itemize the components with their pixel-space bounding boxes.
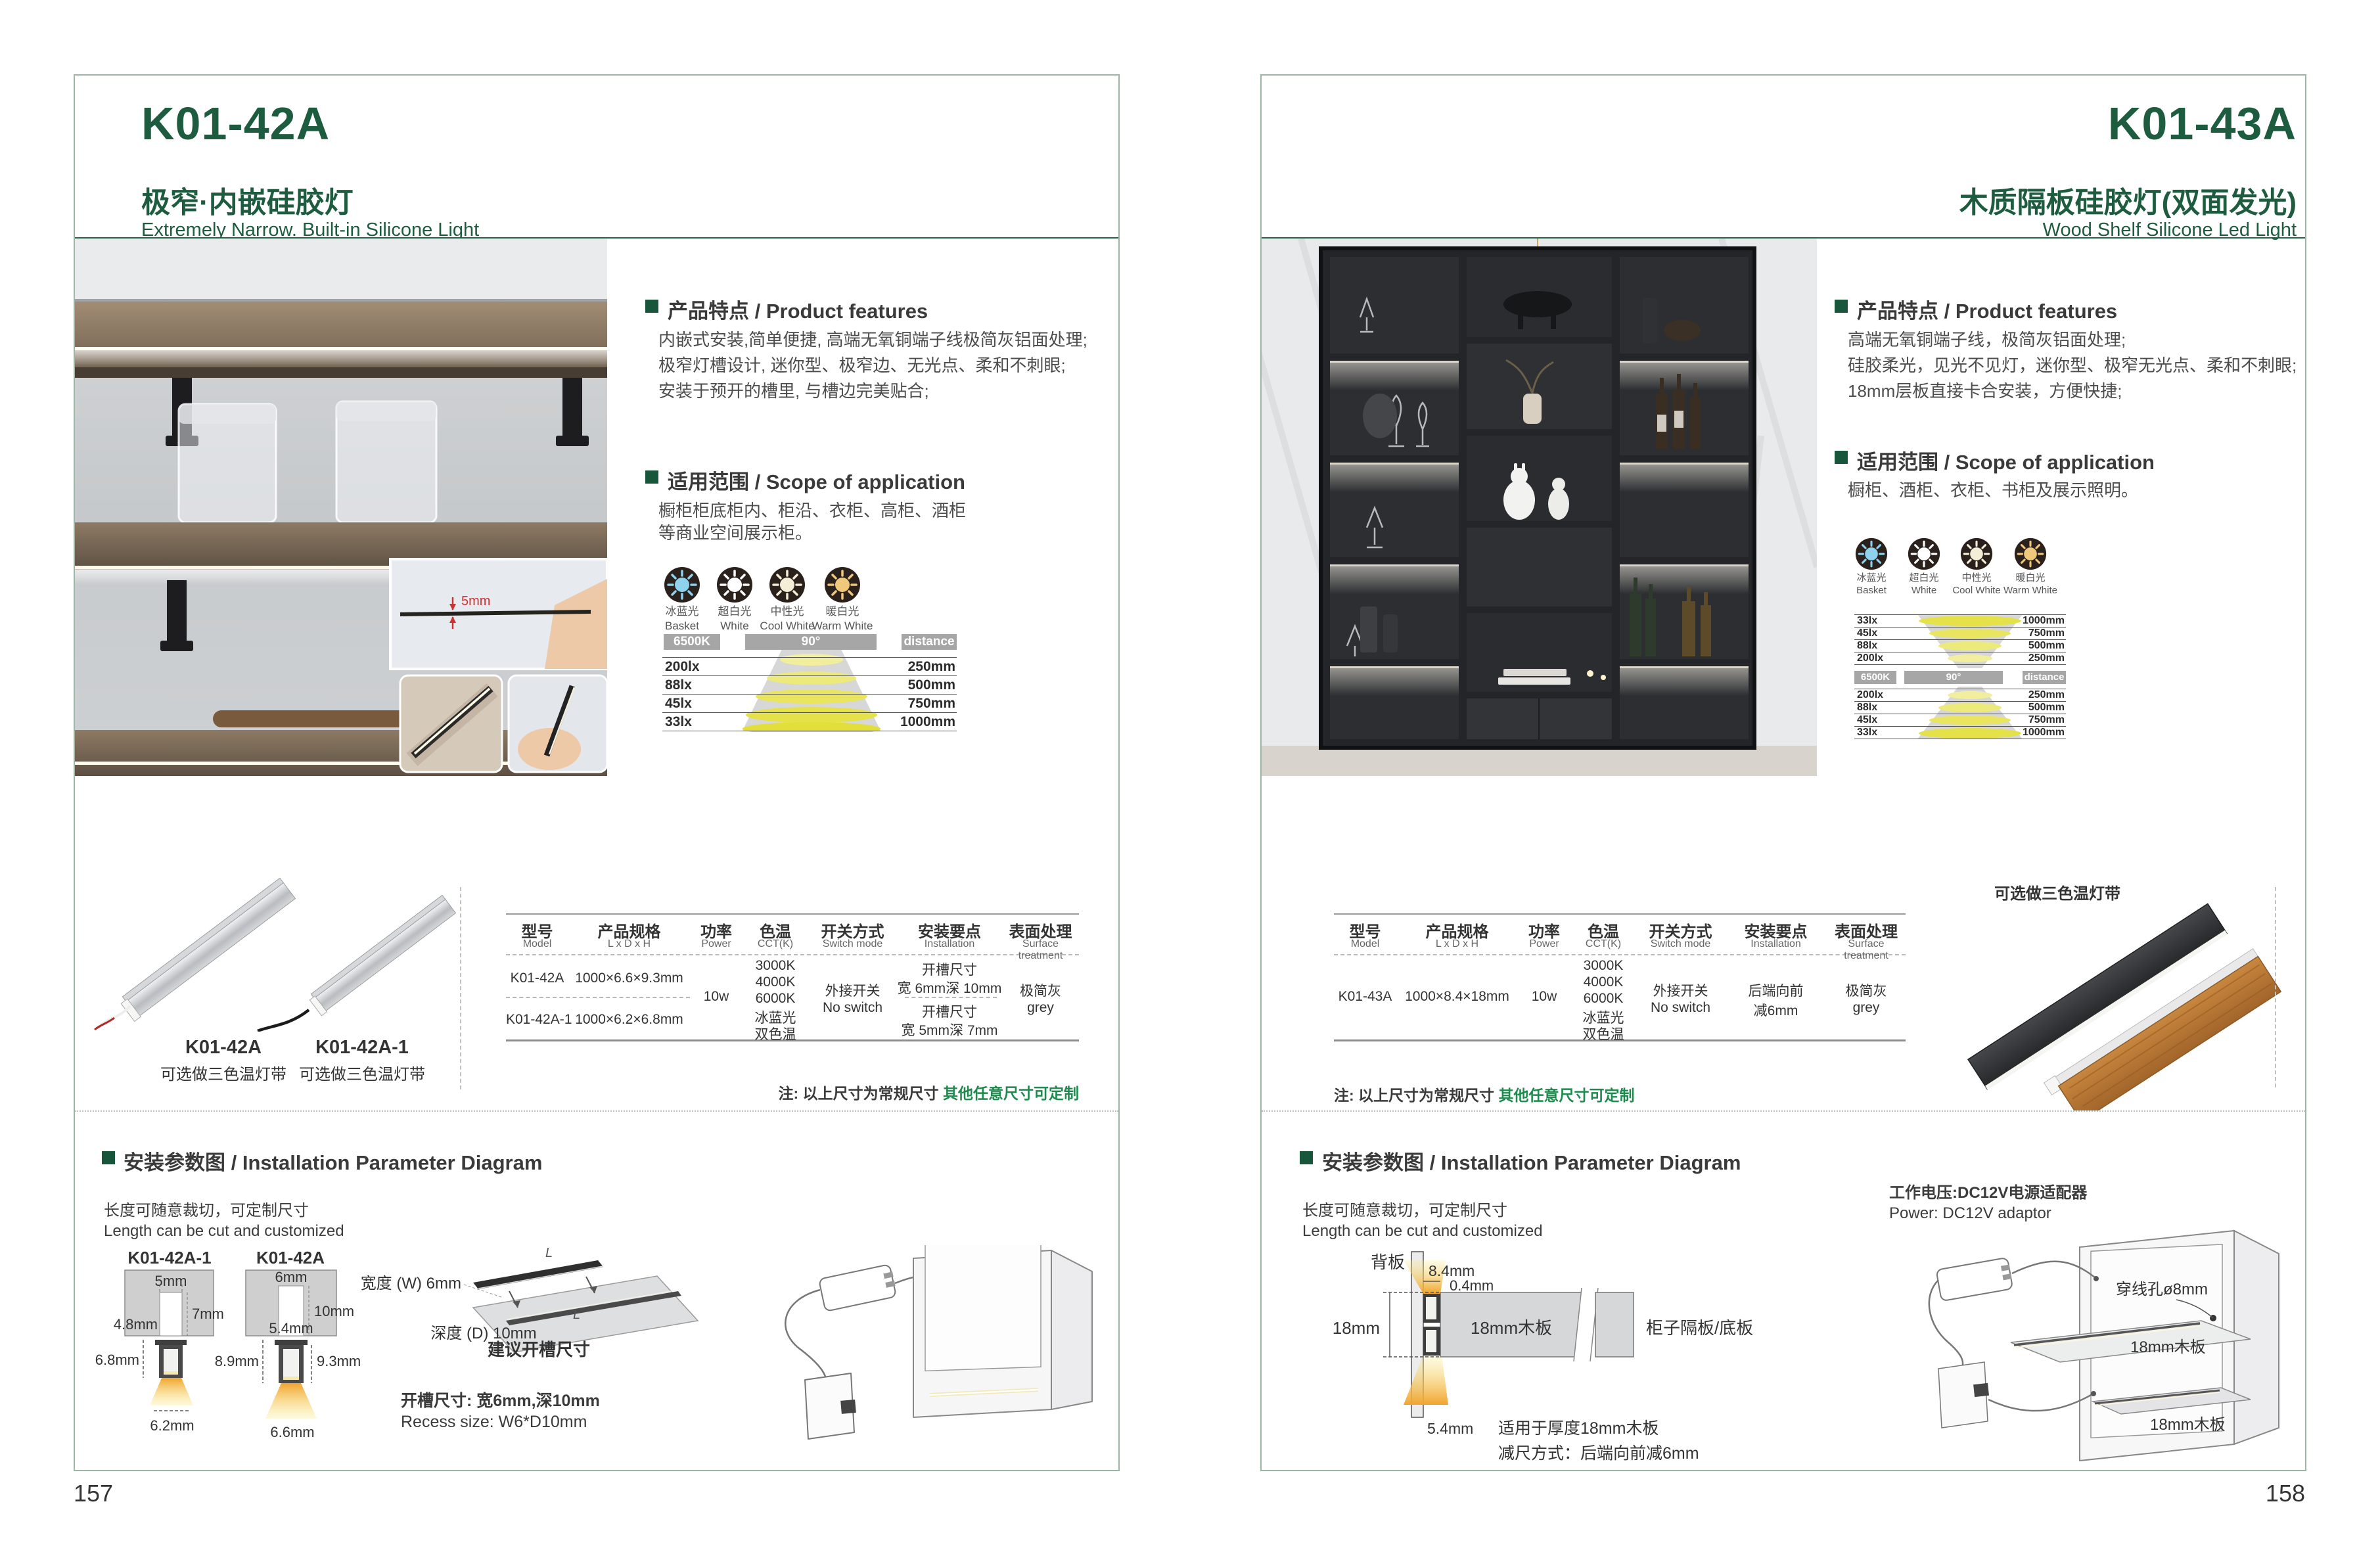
left-product-photo: 5mm: [75, 239, 607, 776]
svg-text:18mm木板: 18mm木板: [2130, 1338, 2206, 1356]
svg-text:8.9mm: 8.9mm: [215, 1353, 259, 1369]
feature-line: 内嵌式安装,简单便捷, 高端无氧铜端子线极简灰铝面处理;: [658, 327, 1087, 351]
distance-value: 1000mm: [1992, 615, 2065, 627]
svg-text:18mm木板: 18mm木板: [2150, 1416, 2226, 1434]
svg-text:减尺方式：后端向前减6mm: 减尺方式：后端向前减6mm: [1498, 1444, 1699, 1463]
svg-text:穿线孔ø8mm: 穿线孔ø8mm: [2116, 1281, 2208, 1298]
ice-blue-light-icon: [1855, 537, 1888, 570]
distance-value: 250mm: [1992, 689, 2065, 701]
adapter-cabinet-diagram: [785, 1245, 1092, 1439]
distance-bar: distance: [2023, 671, 2066, 684]
bullet-icon: [1300, 1151, 1313, 1164]
page-number: 158: [2239, 1480, 2305, 1507]
recess-size-cn: 开槽尺寸: 宽6mm,深10mm: [401, 1388, 600, 1411]
feature-line: 安装于预开的槽里, 与槽边完美贴合;: [658, 378, 929, 402]
cut-note-cn: 长度可随意裁切，可定制尺寸: [1302, 1197, 1507, 1220]
light-color-label: 暖白光Warm White: [803, 605, 882, 633]
svg-text:L: L: [573, 1308, 580, 1322]
bullet-icon: [645, 470, 658, 484]
distance-value: 1000mm: [858, 714, 955, 730]
spec-model: K01-42A: [506, 970, 568, 986]
diagram-K01-42A: K01-42A 6mm 10mm 5.4mm 8.9mm 9.3mm 6.6mm: [215, 1248, 361, 1440]
light-cone: [265, 1383, 317, 1419]
feature-line: 极窄灯槽设计, 迷你型、极窄边、无光点、柔和不刺眼;: [658, 352, 1066, 377]
profile-K01-42A-image: [118, 878, 296, 1021]
inset-hand-profile-photo: [509, 675, 607, 772]
right-scope-heading: 适用范围 / Scope of application: [1857, 445, 2155, 475]
lux-value: 45lx: [665, 696, 692, 712]
svg-text:6.2mm: 6.2mm: [150, 1417, 194, 1434]
svg-text:7mm: 7mm: [192, 1306, 224, 1322]
left-title-cn: 极窄·内嵌硅胶灯: [141, 179, 354, 221]
cool-white-light-icon: [1960, 537, 1993, 570]
inset-dim-label: 5mm: [461, 594, 490, 608]
cabinet-wiring-diagram: 穿线孔ø8mm 18mm木板 18mm木板: [1919, 1221, 2306, 1465]
spec-size: 1000×6.2×6.8mm: [568, 1012, 690, 1028]
custom-size-note: 注: 以上尺寸为常规尺寸 其他任意尺寸可定制: [1334, 1083, 1634, 1105]
spec-model: K01-42A-1: [506, 1012, 568, 1028]
lux-value: 200lx: [1857, 689, 1883, 701]
left-features-heading: 产品特点 / Product features: [668, 294, 928, 324]
product-label: K01-42A-1: [277, 1037, 447, 1059]
wood-tray: [213, 710, 430, 727]
lux-value: 45lx: [1857, 628, 1877, 639]
right-install-heading: 安装参数图 / Installation Parameter Diagram: [1322, 1146, 1741, 1175]
display-cabinet-photo: [1262, 239, 1817, 776]
inset-recessed-panel-photo: [400, 675, 502, 772]
distance-value: 750mm: [858, 696, 955, 712]
svg-text:6.6mm: 6.6mm: [270, 1424, 314, 1440]
left-install-diagrams: K01-42A-1 5mm 7mm 4.8mm 6.8mm 6.2mm K01-…: [85, 1245, 1118, 1467]
spec-switch: 外接开关: [1636, 980, 1725, 1000]
scope-line: 等商业空间展示柜。: [658, 520, 812, 544]
lux-value: 88lx: [665, 677, 692, 693]
red-wire: [95, 1018, 114, 1030]
lux-value: 45lx: [1857, 714, 1877, 726]
right-product-photo: [1262, 239, 1817, 776]
svg-text:适用于厚度18mm木板: 适用于厚度18mm木板: [1498, 1419, 1659, 1438]
section-divider: [1262, 1110, 2305, 1112]
distance-value: 500mm: [1992, 702, 2065, 714]
svg-text:9.3mm: 9.3mm: [317, 1353, 361, 1369]
inset-5mm-photo: 5mm: [390, 559, 607, 669]
lux-value: 88lx: [1857, 640, 1877, 652]
black-wire: [258, 1010, 309, 1031]
cabinet-middle-column: [1467, 257, 1612, 739]
spec-power: 10w: [690, 989, 743, 1005]
svg-text:宽度 (W) 6mm: 宽度 (W) 6mm: [361, 1275, 461, 1292]
svg-text:10mm: 10mm: [314, 1303, 354, 1319]
cabinet-left-column: [1330, 257, 1459, 739]
product-note: 可选做三色温灯带: [277, 1061, 447, 1084]
lux-value: 33lx: [665, 714, 692, 730]
svg-text:6mm: 6mm: [275, 1269, 308, 1285]
distance-value: 750mm: [1992, 628, 2065, 639]
svg-text:背板: 背板: [1371, 1252, 1405, 1272]
cct-bar: 6500K: [1854, 671, 1896, 684]
cut-note-en: Length can be cut and customized: [1302, 1222, 1543, 1241]
lux-value: 33lx: [1857, 727, 1877, 739]
catalog-spread: { "colors":{"brand_green":"#1e5c3f","not…: [0, 0, 2380, 1552]
feature-line: 18mm层板直接卡合安装，方便快捷;: [1848, 378, 2122, 402]
distance-value: 250mm: [858, 659, 955, 675]
bullet-icon: [1835, 300, 1848, 313]
lux-value: 88lx: [1857, 702, 1877, 714]
bullet-icon: [102, 1151, 115, 1164]
svg-text:4.8mm: 4.8mm: [114, 1316, 158, 1333]
profile-K01-42A-1-image: [308, 895, 457, 1015]
svg-text:5.4mm: 5.4mm: [269, 1320, 313, 1336]
left-install-heading: 安装参数图 / Installation Parameter Diagram: [124, 1146, 542, 1175]
diagram-K01-42A-1: K01-42A-1 5mm 7mm 4.8mm 6.8mm 6.2mm: [95, 1248, 224, 1434]
left-model-title: K01-42A: [141, 97, 330, 150]
svg-text:K01-42A: K01-42A: [256, 1248, 325, 1267]
spec-switch: 外接开关: [808, 980, 897, 1000]
warm-white-light-icon: [824, 566, 861, 603]
ceiling: [75, 239, 607, 301]
distance-value: 750mm: [1992, 714, 2065, 726]
svg-text:建议开槽尺寸: 建议开槽尺寸: [488, 1340, 590, 1359]
cut-note-cn: 长度可随意裁切，可定制尺寸: [104, 1197, 309, 1220]
spec-power: 10w: [1518, 989, 1570, 1005]
spec-size: 1000×8.4×18mm: [1396, 989, 1518, 1005]
white-light-icon: [716, 566, 753, 603]
lux-value: 33lx: [1857, 615, 1877, 627]
custom-size-note: 注: 以上尺寸为常规尺寸 其他任意尺寸可定制: [685, 1081, 1079, 1103]
page-number: 157: [74, 1480, 113, 1507]
spec-size: 1000×6.6×9.3mm: [568, 970, 690, 986]
right-title-cn: 木质隔板硅胶灯(双面发光): [1906, 179, 2297, 221]
light-cone: [150, 1378, 193, 1405]
ice-blue-light-icon: [664, 566, 700, 603]
cct-bar: 6500K: [664, 634, 720, 650]
suggested-recess-diagram: L L 宽度 (W) 6mm 深度 (D) 10mm 建议开槽尺寸: [361, 1246, 698, 1359]
shelf-lighting-photo: 5mm: [75, 239, 607, 776]
cool-white-light-icon: [769, 566, 806, 603]
svg-text:6.8mm: 6.8mm: [95, 1352, 139, 1368]
profile-product-images: [92, 871, 473, 1032]
upper-shelf: [75, 302, 607, 378]
angle-bar: 90°: [745, 634, 877, 650]
power-label-cn: 工作电压:DC12V电源适配器: [1889, 1179, 2087, 1202]
svg-text:5mm: 5mm: [155, 1273, 187, 1289]
power-label-en: Power: DC12V adaptor: [1889, 1204, 2051, 1223]
distance-bar: distance: [902, 634, 957, 650]
spec-install: 开槽尺寸: [897, 959, 1002, 979]
spec-model: K01-43A: [1334, 989, 1396, 1005]
svg-text:18mm: 18mm: [1333, 1318, 1380, 1338]
distance-value: 250mm: [1992, 652, 2065, 664]
svg-text:0.4mm: 0.4mm: [1450, 1277, 1494, 1294]
distance-value: 1000mm: [1992, 727, 2065, 739]
section-divider: [2275, 887, 2276, 1087]
section-divider: [75, 1110, 1118, 1112]
feature-line: 高端无氧铜端子线，极简灰铝面处理;: [1848, 327, 2126, 351]
light-color-label: 暖白光Warm White: [1994, 572, 2067, 597]
distance-value: 500mm: [858, 677, 955, 693]
left-scope-heading: 适用范围 / Scope of application: [668, 465, 965, 495]
scope-line: 橱柜、酒柜、衣柜、书柜及展示照明。: [1848, 477, 2138, 501]
feature-line: 硅胶柔光，见光不见灯，迷你型、极窄无光点、柔和不刺眼;: [1848, 352, 2297, 377]
angle-bar: 90°: [1904, 671, 2003, 684]
right-features-heading: 产品特点 / Product features: [1857, 294, 2117, 324]
bullet-icon: [1835, 451, 1848, 464]
right-model-title: K01-43A: [1906, 97, 2297, 150]
distance-value: 500mm: [1992, 640, 2065, 652]
wood-shelf-profile-image: [1945, 877, 2303, 1110]
section-divider: [460, 887, 461, 1089]
svg-text:L: L: [545, 1246, 553, 1260]
lux-value: 200lx: [665, 659, 700, 675]
recess-size-en: Recess size: W6*D10mm: [401, 1413, 587, 1432]
white-light-icon: [1908, 537, 1940, 570]
warm-white-light-icon: [2014, 537, 2047, 570]
svg-text:K01-42A-1: K01-42A-1: [127, 1248, 211, 1267]
lux-value: 200lx: [1857, 652, 1883, 664]
shelf-cross-section-diagram: 背板 18mm木板 柜子隔板/底板 18mm 8.4mm 0.4mm 5.4mm…: [1288, 1242, 1899, 1469]
light-cone-down: [1404, 1355, 1448, 1405]
spec-install: 后端向前: [1725, 980, 1827, 1000]
svg-text:5.4mm: 5.4mm: [1427, 1420, 1473, 1437]
spec-surface: 极简灰: [1002, 980, 1079, 1000]
svg-text:柜子隔板/底板: 柜子隔板/底板: [1646, 1318, 1753, 1338]
double-sided-profile: [1423, 1294, 1440, 1356]
svg-text:18mm木板: 18mm木板: [1471, 1318, 1552, 1338]
bullet-icon: [645, 300, 658, 313]
spec-surface: 极简灰: [1827, 980, 1906, 1000]
scope-line: 橱柜柜底柜内、柜沿、衣柜、高柜、酒柜: [658, 497, 966, 522]
cut-note-en: Length can be cut and customized: [104, 1222, 344, 1241]
